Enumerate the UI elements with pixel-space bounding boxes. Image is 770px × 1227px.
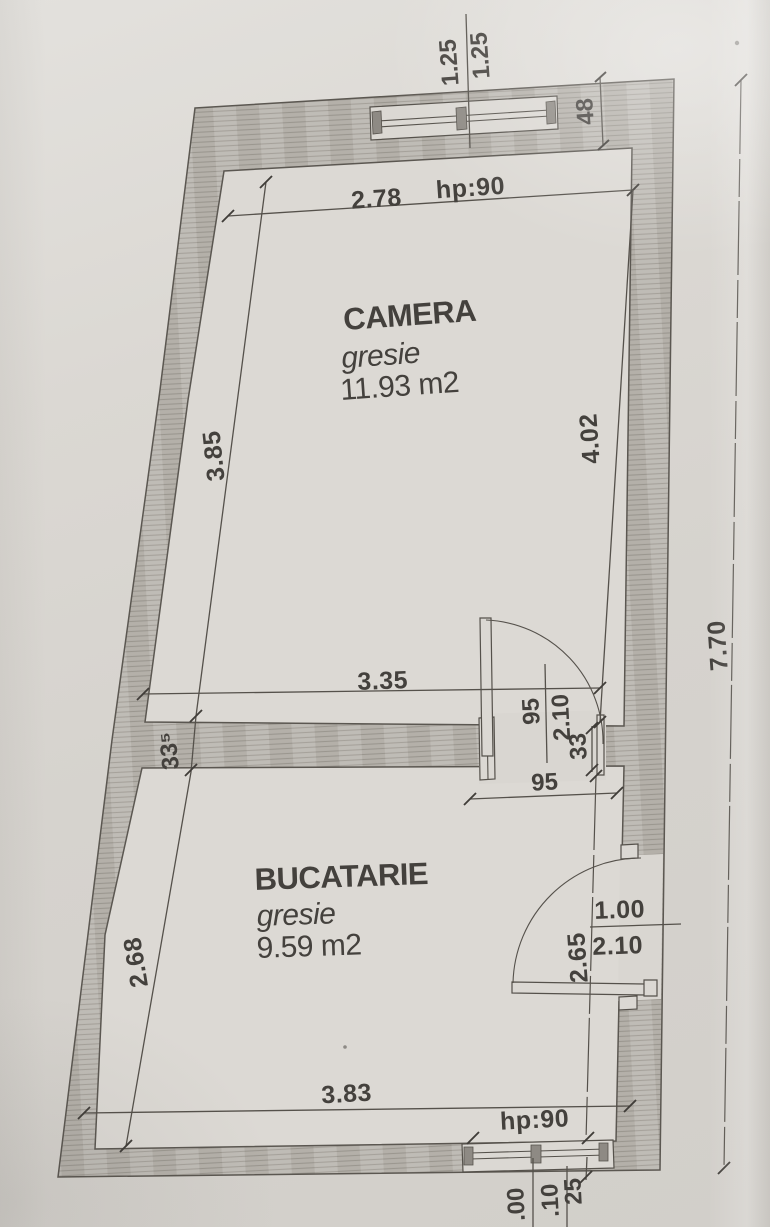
paper-speck xyxy=(735,41,739,45)
window-bottom-end-block xyxy=(599,1143,608,1161)
dim-camera-width: 3.35 xyxy=(357,666,409,696)
dim-wall-left-thickness: 33⁵ xyxy=(154,730,185,771)
window-bottom xyxy=(462,1140,614,1172)
dim-top-width: 2.78 xyxy=(350,183,403,214)
window-top-end-block xyxy=(372,111,382,134)
room-bucatarie-finish: gresie xyxy=(256,897,336,933)
door-exterior-opening xyxy=(618,854,663,1001)
window-top-mid-block xyxy=(456,107,467,130)
dim-door1-width: 95 xyxy=(517,697,545,725)
dim-bucatarie-width: 3.83 xyxy=(321,1079,373,1110)
dim-hp-top: hp:90 xyxy=(435,172,506,205)
scanned-floor-plan: 1.25 1.25 48 2.78 hp:90 CAMERA gresie 11… xyxy=(0,0,770,1227)
dim-door2-width: 1.00 xyxy=(594,895,646,925)
dim-wall-right-thickness: 33 xyxy=(564,732,592,760)
dim-camera-right: 4.02 xyxy=(574,412,605,465)
door-exterior-hinge-block xyxy=(644,980,657,996)
window-bottom-end-block xyxy=(464,1147,473,1165)
door-exterior-frame-top xyxy=(621,844,638,859)
floor-plan-drawing: 1.25 1.25 48 2.78 hp:90 CAMERA gresie 11… xyxy=(0,0,770,1227)
paper-speck xyxy=(343,1045,347,1049)
dim-window-top-a: 1.25 xyxy=(434,38,464,86)
dim-window-top-b: 1.25 xyxy=(465,31,495,79)
level-25: 25 xyxy=(559,1177,587,1205)
door-interior-leaf xyxy=(480,618,493,756)
dim-door2-height: 2.10 xyxy=(592,931,644,961)
dim-door1-opening: 95 xyxy=(531,768,559,796)
dim-wall-corner: 48 xyxy=(571,97,600,126)
dim-bucatarie-right: 2.65 xyxy=(562,931,593,984)
dim-total-height: 7.70 xyxy=(702,619,733,672)
door-exterior-leaf xyxy=(512,982,645,995)
door-exterior-frame-bottom xyxy=(619,996,637,1010)
window-top-end-block xyxy=(546,101,556,124)
level-00: .00 xyxy=(502,1187,531,1222)
dim-camera-left: 3.85 xyxy=(197,429,230,482)
room-bucatarie-area: 9.59 m2 xyxy=(256,928,362,965)
room-bucatarie-name: BUCATARIE xyxy=(254,856,429,897)
dim-hp-bottom: hp:90 xyxy=(499,1104,570,1136)
